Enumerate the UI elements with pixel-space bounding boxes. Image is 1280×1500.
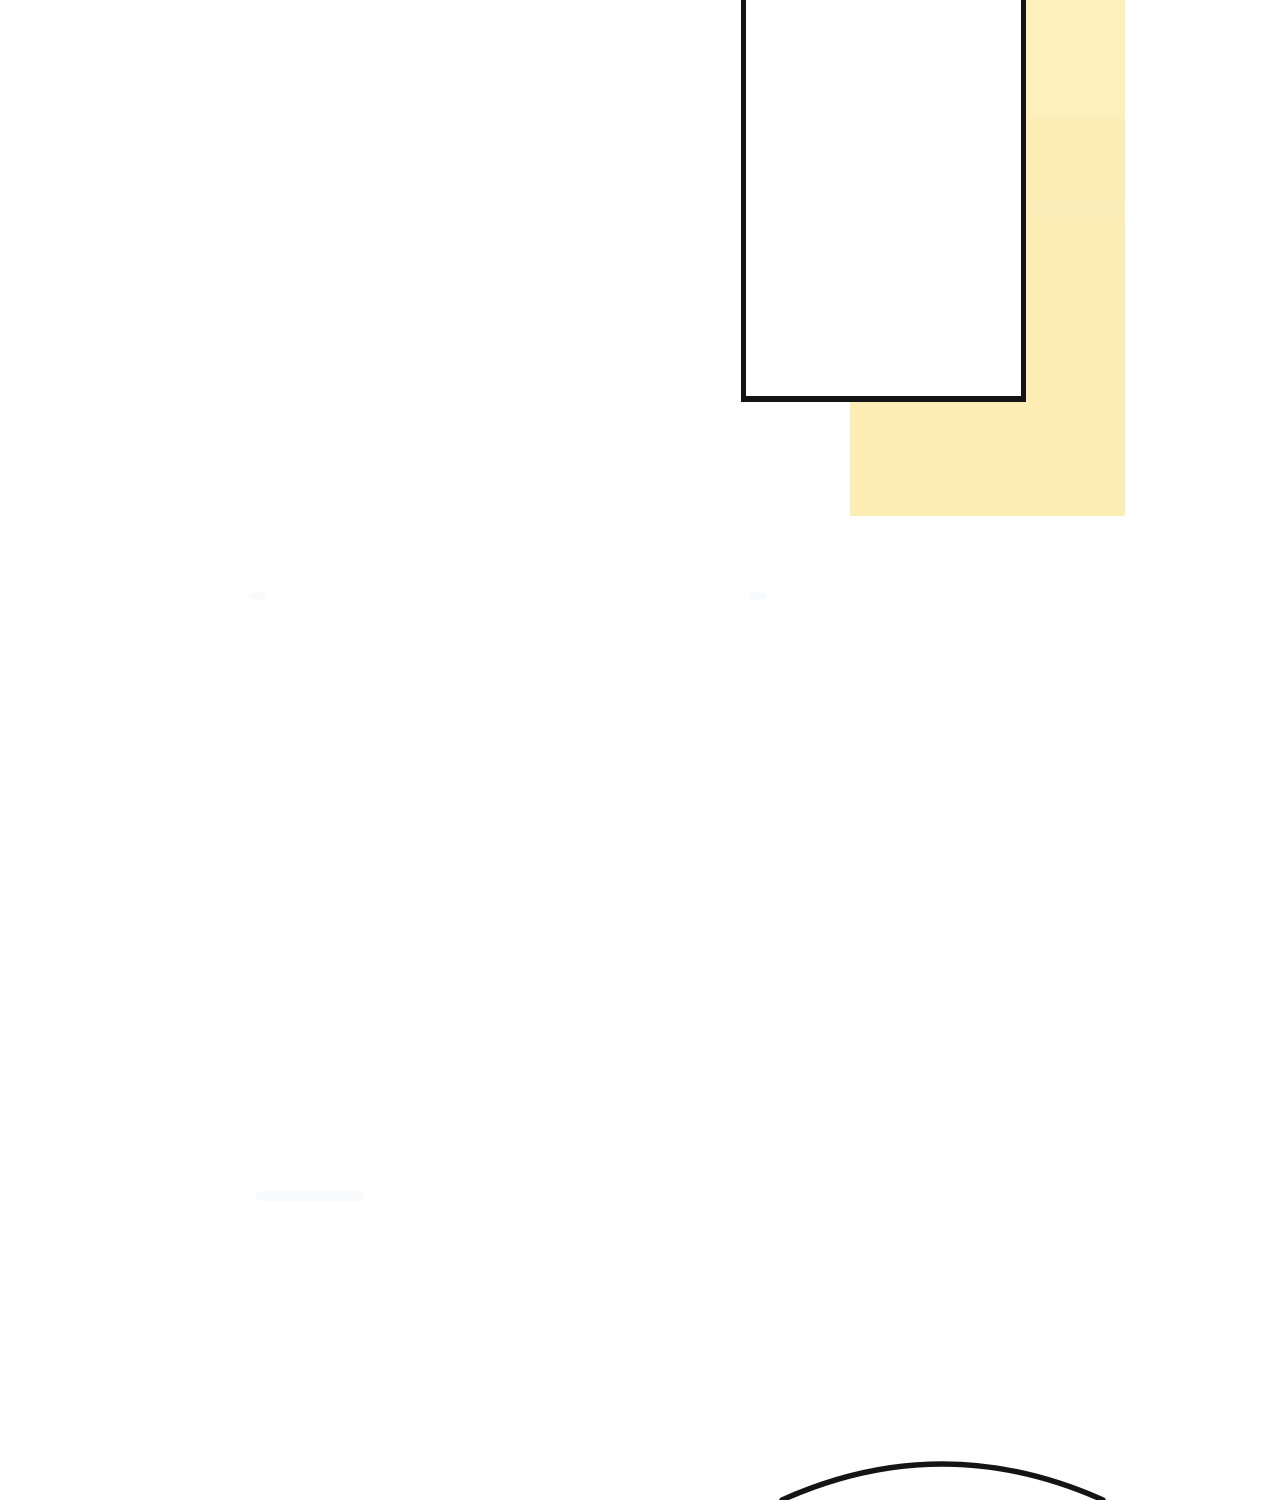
- panel-drop-shadow-highlight: [1026, 0, 1125, 118]
- head-outline-arc: [0, 1440, 1280, 1500]
- comic-page: [0, 0, 1280, 1500]
- panel-drop-shadow-highlight: [1030, 200, 1125, 218]
- head-outline-arc-path: [782, 1464, 1103, 1500]
- paper-smudge: [248, 592, 266, 601]
- empty-comic-panel: [741, 0, 1026, 402]
- paper-smudge: [256, 1191, 364, 1201]
- paper-smudge: [749, 592, 767, 601]
